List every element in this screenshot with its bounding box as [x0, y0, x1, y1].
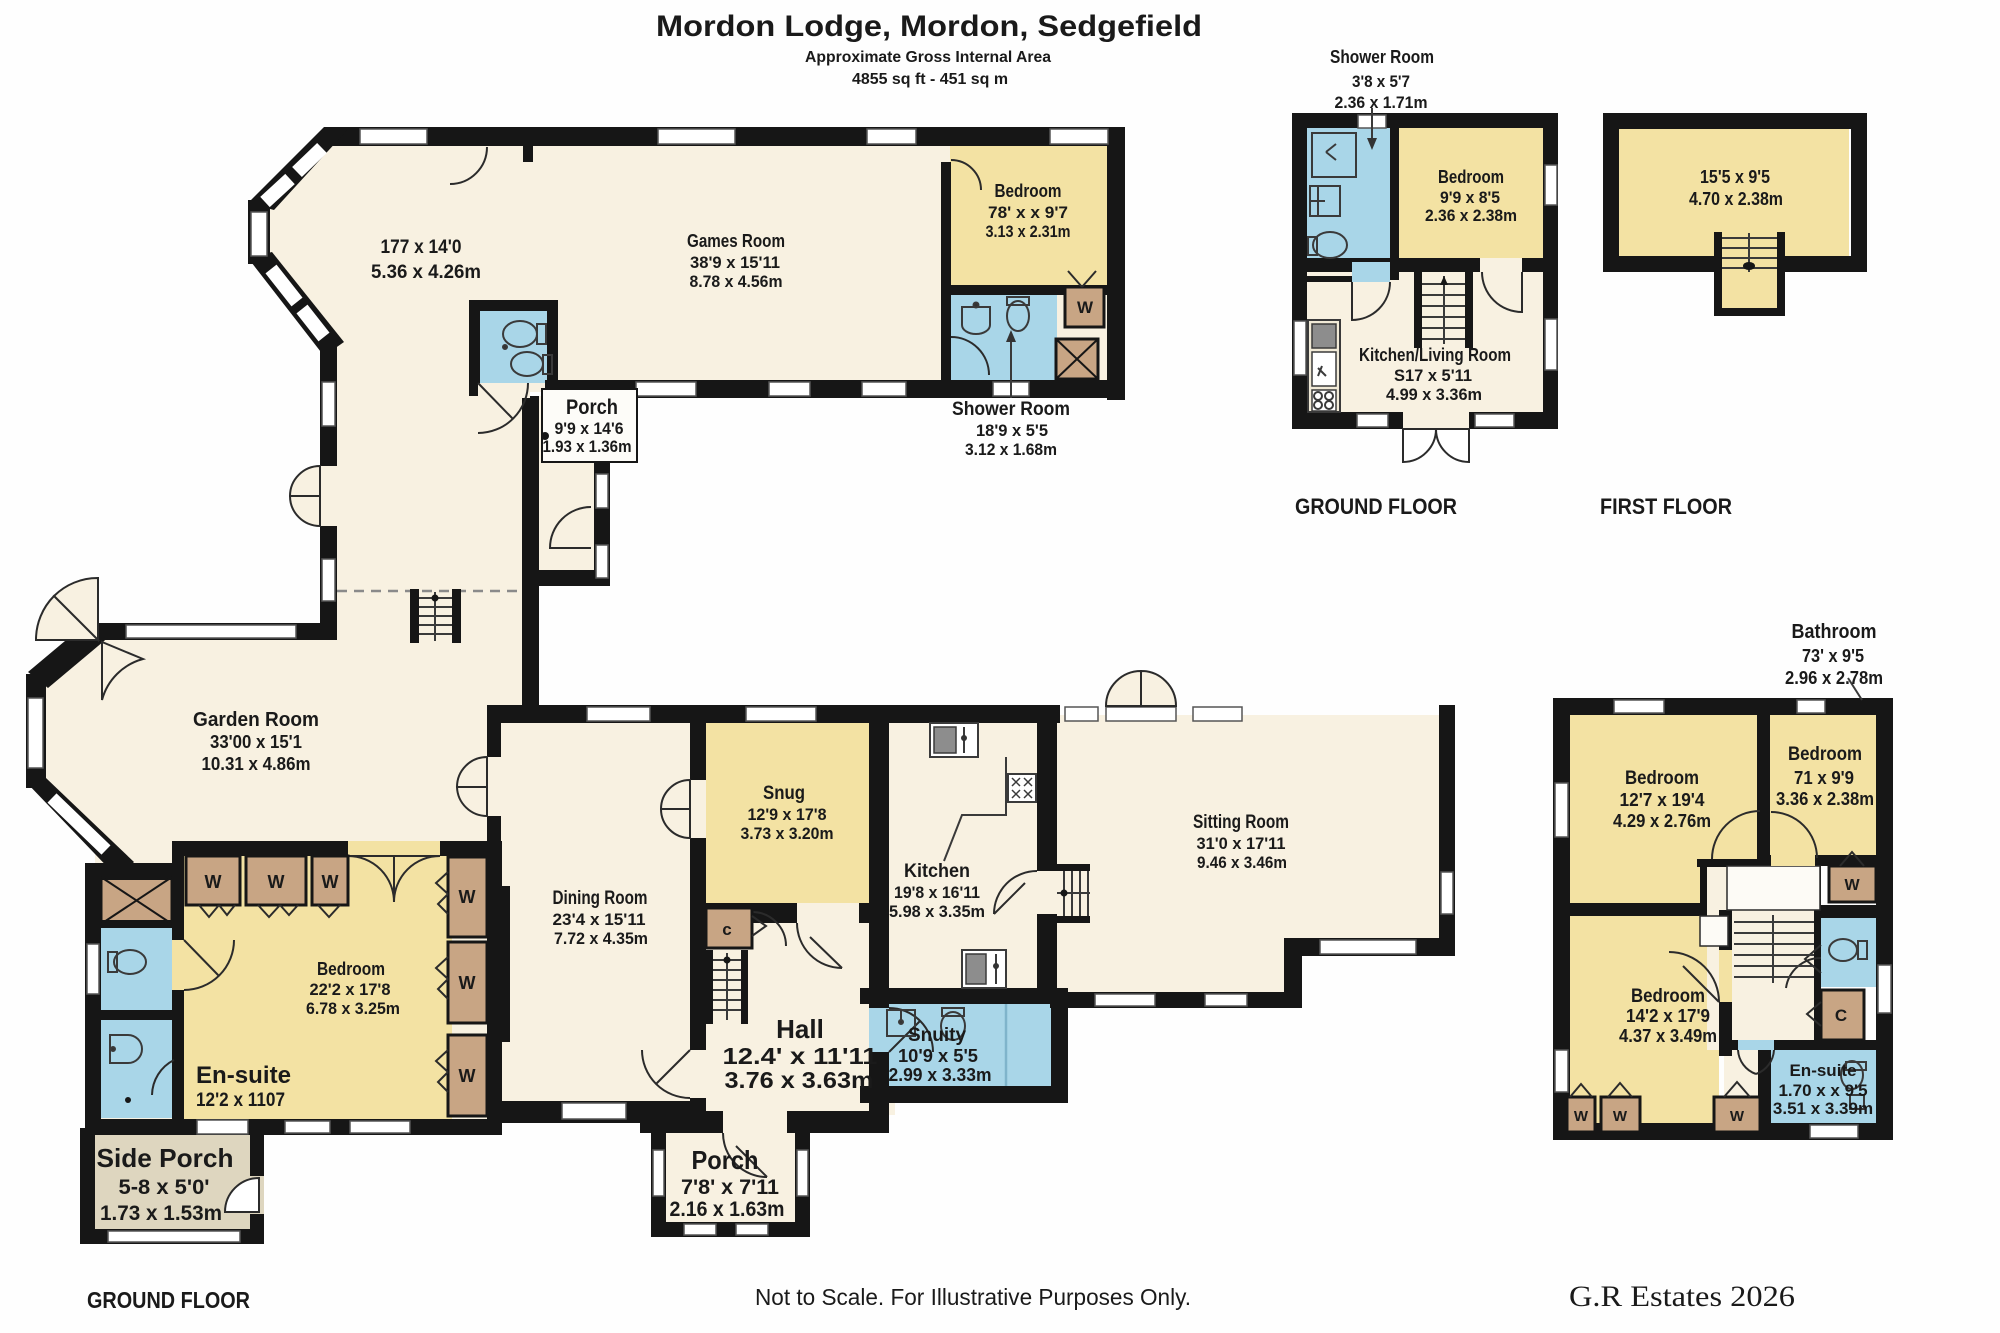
svg-text:177 x 14'0: 177 x 14'0: [381, 237, 462, 258]
svg-text:Bedroom: Bedroom: [317, 959, 385, 979]
svg-text:Kitchen: Kitchen: [904, 861, 970, 882]
svg-text:9'9 x 14'6: 9'9 x 14'6: [555, 419, 624, 438]
svg-text:3'8 x 5'7: 3'8 x 5'7: [1352, 72, 1410, 91]
svg-text:Not to Scale. For Illustrative: Not to Scale. For Illustrative Purposes …: [755, 1284, 1191, 1310]
svg-text:2.99 x 3.33m: 2.99 x 3.33m: [889, 1065, 992, 1085]
svg-text:5.36 x 4.26m: 5.36 x 4.26m: [371, 262, 481, 283]
svg-text:Side Porch: Side Porch: [97, 1143, 234, 1173]
svg-text:FIRST FLOOR: FIRST FLOOR: [1600, 494, 1732, 519]
svg-text:78' x x 9'7: 78' x x 9'7: [988, 203, 1068, 222]
svg-text:4.70 x 2.38m: 4.70 x 2.38m: [1689, 189, 1783, 209]
svg-text:2.36 x 1.71m: 2.36 x 1.71m: [1335, 93, 1428, 112]
svg-text:22'2 x 17'8: 22'2 x 17'8: [310, 980, 391, 999]
svg-text:2.16 x 1.63m: 2.16 x 1.63m: [670, 1198, 785, 1221]
svg-text:GROUND FLOOR: GROUND FLOOR: [87, 1287, 250, 1313]
svg-text:8.78 x 4.56m: 8.78 x 4.56m: [690, 272, 783, 291]
svg-text:2.96 x 2.78m: 2.96 x 2.78m: [1785, 668, 1883, 688]
svg-text:3.12 x 1.68m: 3.12 x 1.68m: [965, 440, 1057, 459]
svg-text:Snuity: Snuity: [908, 1025, 966, 1046]
svg-text:Bedroom: Bedroom: [1438, 167, 1504, 187]
svg-text:10'9 x 5'5: 10'9 x 5'5: [898, 1046, 978, 1066]
svg-text:71 x 9'9: 71 x 9'9: [1794, 768, 1854, 788]
svg-text:12'2 x 1107: 12'2 x 1107: [196, 1090, 285, 1111]
svg-text:En-suite: En-suite: [196, 1062, 291, 1089]
svg-text:En-suite: En-suite: [1789, 1061, 1856, 1080]
svg-text:W: W: [205, 872, 222, 892]
svg-text:Bedroom: Bedroom: [1625, 768, 1699, 789]
svg-text:Kitchen/Living Room: Kitchen/Living Room: [1359, 345, 1511, 365]
svg-text:33'00 x 15'1: 33'00 x 15'1: [210, 732, 302, 752]
svg-text:G.R Estates 2026: G.R Estates 2026: [1569, 1280, 1795, 1313]
svg-text:3.73 x 3.20m: 3.73 x 3.20m: [741, 824, 834, 843]
svg-text:Porch: Porch: [692, 1145, 759, 1175]
svg-text:W: W: [268, 872, 285, 892]
svg-text:73' x 9'5: 73' x 9'5: [1802, 646, 1864, 666]
svg-text:5-8 x 5'0': 5-8 x 5'0': [119, 1176, 210, 1199]
svg-text:Approximate Gross Internal Are: Approximate Gross Internal Area: [805, 49, 1051, 66]
svg-text:Garden Room: Garden Room: [193, 709, 319, 731]
svg-text:7'8' x 7'11: 7'8' x 7'11: [681, 1176, 779, 1199]
svg-text:GROUND FLOOR: GROUND FLOOR: [1295, 494, 1457, 519]
svg-text:3.51 x 3.39m: 3.51 x 3.39m: [1773, 1099, 1873, 1118]
svg-text:19'8 x 16'11: 19'8 x 16'11: [894, 883, 980, 902]
svg-text:1.70 x x 9'5: 1.70 x x 9'5: [1778, 1081, 1867, 1100]
svg-text:9.46 x 3.46m: 9.46 x 3.46m: [1197, 853, 1287, 872]
svg-text:15'5 x 9'5: 15'5 x 9'5: [1700, 167, 1770, 187]
svg-text:14'2 x 17'9: 14'2 x 17'9: [1626, 1006, 1710, 1026]
svg-text:4.29 x 2.76m: 4.29 x 2.76m: [1613, 811, 1711, 831]
svg-text:4.37 x 3.49m: 4.37 x 3.49m: [1619, 1026, 1717, 1046]
svg-text:W: W: [1077, 298, 1094, 317]
svg-text:W: W: [459, 887, 476, 907]
svg-text:C: C: [1835, 1006, 1847, 1025]
svg-text:4855 sq ft - 451 sq m: 4855 sq ft - 451 sq m: [852, 71, 1008, 88]
svg-text:W: W: [459, 1066, 476, 1086]
svg-text:c: c: [722, 920, 731, 939]
svg-text:Bedroom: Bedroom: [1788, 744, 1862, 765]
svg-text:3.13 x 2.31m: 3.13 x 2.31m: [986, 222, 1071, 241]
svg-text:Porch: Porch: [566, 396, 618, 419]
svg-text:Bedroom: Bedroom: [995, 181, 1062, 201]
svg-text:Shower Room: Shower Room: [1330, 47, 1434, 67]
svg-text:1.73 x 1.53m: 1.73 x 1.53m: [100, 1202, 222, 1225]
svg-text:W: W: [1574, 1108, 1589, 1125]
svg-text:3.36 x 2.38m: 3.36 x 2.38m: [1776, 789, 1874, 809]
svg-text:1.93 x 1.36m: 1.93 x 1.36m: [543, 437, 632, 456]
svg-text:Bedroom: Bedroom: [1631, 986, 1705, 1007]
svg-text:Sitting Room: Sitting Room: [1193, 812, 1289, 833]
svg-text:12'7 x 19'4: 12'7 x 19'4: [1620, 790, 1705, 810]
svg-text:9'9 x 8'5: 9'9 x 8'5: [1440, 188, 1500, 207]
svg-text:Hall: Hall: [776, 1014, 824, 1044]
svg-text:W: W: [1613, 1108, 1628, 1125]
svg-text:6.78 x 3.25m: 6.78 x 3.25m: [306, 999, 400, 1018]
svg-text:12'9 x 17'8: 12'9 x 17'8: [748, 805, 827, 824]
svg-text:W: W: [1844, 877, 1860, 894]
svg-text:W: W: [1730, 1108, 1745, 1125]
svg-text:4.99 x 3.36m: 4.99 x 3.36m: [1386, 385, 1482, 404]
svg-text:3.76 x 3.63m: 3.76 x 3.63m: [725, 1067, 874, 1093]
svg-text:5.98 x 3.35m: 5.98 x 3.35m: [889, 902, 985, 921]
svg-text:Snug: Snug: [763, 783, 805, 804]
svg-text:S17 x 5'11: S17 x 5'11: [1394, 366, 1472, 385]
svg-text:18'9 x 5'5: 18'9 x 5'5: [976, 421, 1048, 440]
svg-text:31'0 x 17'11: 31'0 x 17'11: [1197, 834, 1286, 853]
svg-text:W: W: [459, 973, 476, 993]
svg-text:Dining Room: Dining Room: [553, 888, 648, 909]
svg-text:Bathroom: Bathroom: [1792, 621, 1877, 643]
svg-text:Shower Room: Shower Room: [952, 399, 1070, 420]
svg-text:2.36 x 2.38m: 2.36 x 2.38m: [1425, 206, 1517, 225]
svg-text:Games Room: Games Room: [687, 231, 785, 251]
svg-text:10.31 x 4.86m: 10.31 x 4.86m: [202, 754, 311, 774]
svg-text:12.4' x 11'11: 12.4' x 11'11: [723, 1043, 878, 1069]
svg-text:7.72 x 4.35m: 7.72 x 4.35m: [554, 929, 648, 948]
svg-text:23'4 x 15'11: 23'4 x 15'11: [553, 910, 646, 929]
svg-text:Mordon Lodge, Mordon, Sedgefie: Mordon Lodge, Mordon, Sedgefield: [656, 10, 1202, 43]
svg-text:38'9 x 15'11: 38'9 x 15'11: [690, 253, 780, 272]
svg-text:W: W: [322, 872, 339, 892]
